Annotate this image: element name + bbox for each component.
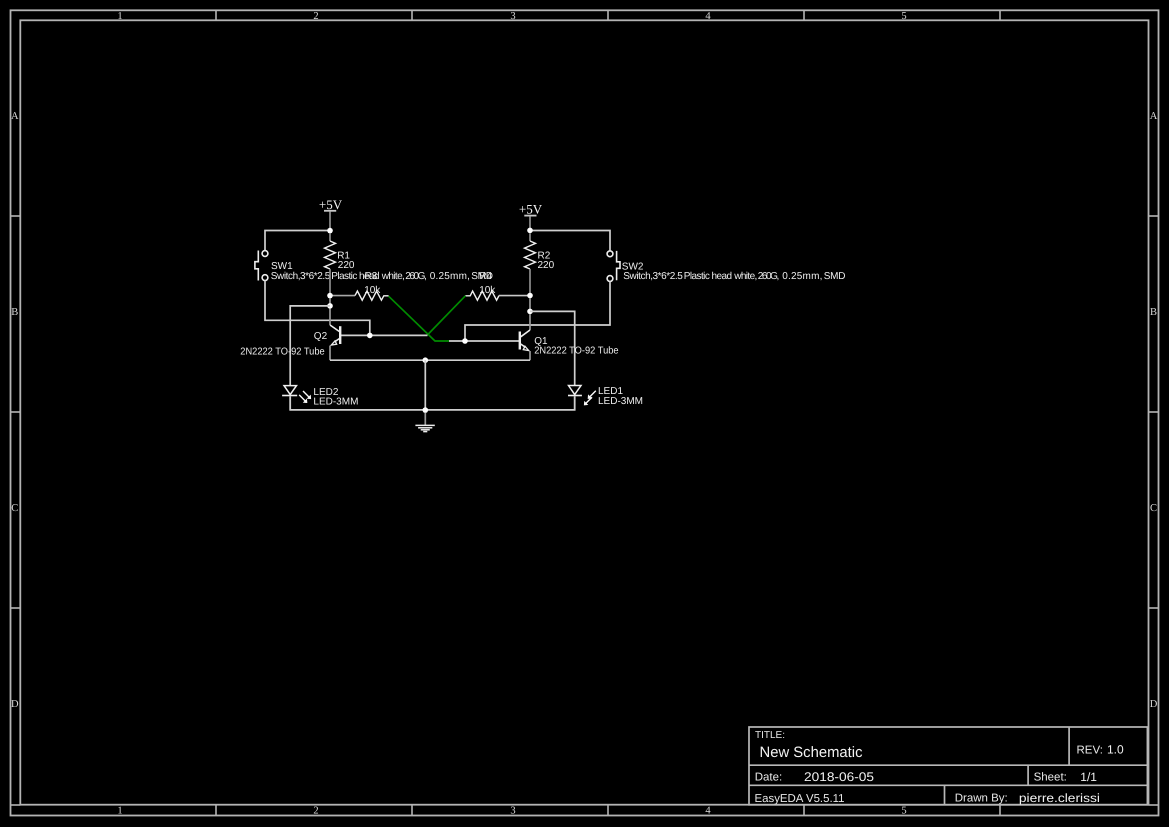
svg-text:2: 2 [313,11,318,22]
svg-text:3: 3 [510,806,515,817]
svg-text:LED-3MM: LED-3MM [598,396,643,407]
svg-text:R4: R4 [479,271,492,282]
svg-text:Q2: Q2 [314,331,328,342]
svg-text:Switch,3*6*2.5Plastic head whi: Switch,3*6*2.5Plastic head white,260G, 0… [623,271,845,282]
svg-text:Date:: Date: [755,772,783,784]
svg-text:Switch,3*6*2.5Plastic head whi: Switch,3*6*2.5Plastic head white,260G, 0… [271,271,493,282]
svg-text:TITLE:: TITLE: [755,730,785,741]
svg-text:1: 1 [117,806,122,817]
svg-text:10k: 10k [364,285,381,296]
svg-text:D: D [11,699,19,710]
svg-text:C: C [11,503,18,514]
svg-text:Drawn By:: Drawn By: [955,793,1008,805]
svg-text:C: C [1150,503,1157,514]
svg-text:REV:: REV: [1077,744,1103,756]
svg-text:R3: R3 [365,271,378,282]
svg-text:4: 4 [705,806,711,817]
svg-text:3: 3 [510,11,515,22]
svg-text:220: 220 [538,260,555,271]
svg-text:4: 4 [705,11,711,22]
svg-text:+5V: +5V [319,197,343,212]
svg-text:B: B [11,307,18,318]
svg-text:5: 5 [901,806,906,817]
svg-text:1.0: 1.0 [1107,743,1124,757]
svg-text:B: B [1150,307,1157,318]
svg-text:2N2222 TO-92 Tube: 2N2222 TO-92 Tube [534,346,619,357]
svg-text:LED-3MM: LED-3MM [313,396,358,407]
svg-text:pierre.clerissi: pierre.clerissi [1019,791,1100,805]
svg-text:A: A [11,111,19,122]
svg-text:+5V: +5V [519,202,543,217]
svg-text:2018-06-05: 2018-06-05 [804,770,874,784]
svg-text:D: D [1150,699,1158,710]
svg-text:1/1: 1/1 [1080,770,1097,784]
svg-text:New Schematic: New Schematic [760,744,863,761]
svg-text:220: 220 [338,260,355,271]
svg-text:1: 1 [117,11,122,22]
svg-text:2: 2 [313,806,318,817]
svg-text:10k: 10k [479,285,496,296]
svg-text:5: 5 [901,11,906,22]
svg-text:A: A [1150,111,1158,122]
svg-text:EasyEDA V5.5.11: EasyEDA V5.5.11 [755,793,845,805]
svg-text:Sheet:: Sheet: [1034,772,1067,784]
svg-text:2N2222 TO-92 Tube: 2N2222 TO-92 Tube [240,346,325,357]
